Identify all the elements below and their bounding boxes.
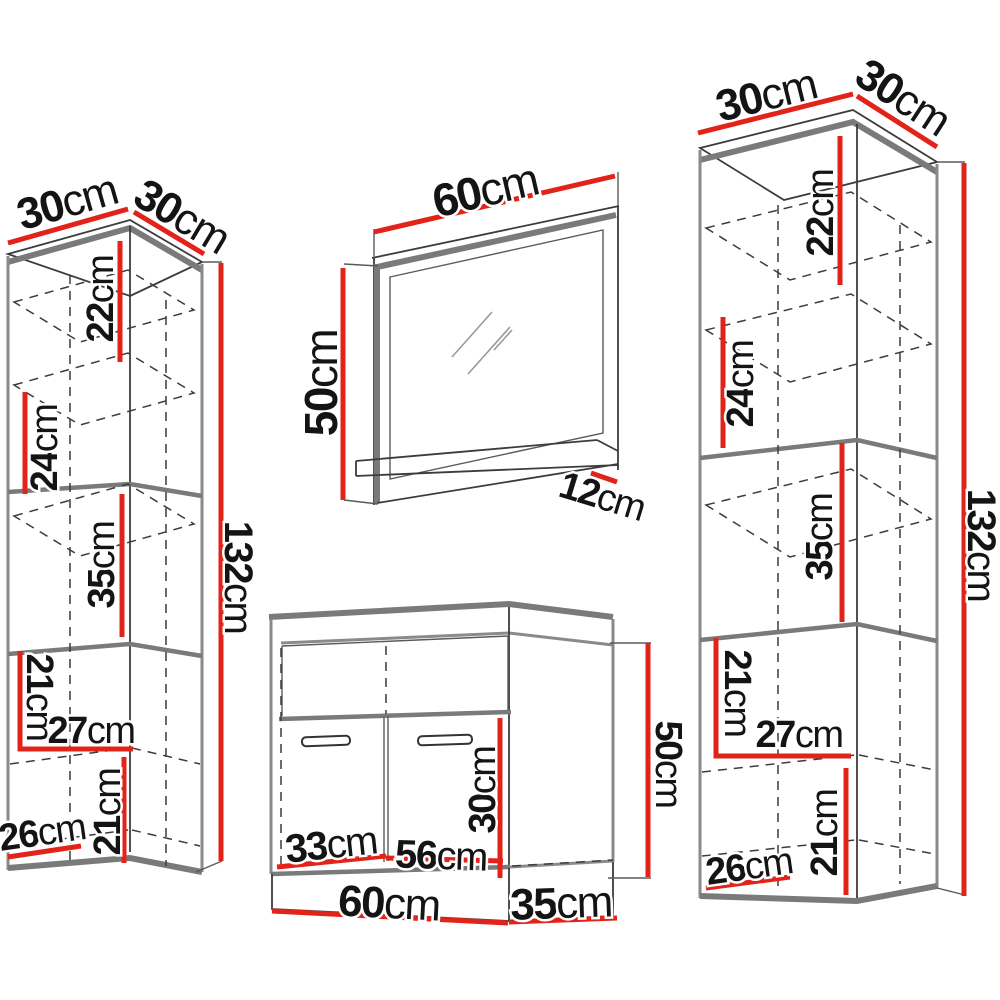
dim-label-left-22: 22cm	[80, 256, 122, 343]
vanity-drawer-panel	[282, 636, 508, 716]
dim-label-right-24: 24cm	[720, 341, 762, 428]
dim-label-right-35: 35cm	[799, 494, 841, 581]
dim-label-vanity-35: 35cm	[509, 877, 612, 930]
dim-label-vanity-30: 30cm	[462, 747, 504, 834]
dim-label-left-21b: 21cm	[87, 769, 129, 856]
vanity-divider	[279, 712, 511, 719]
dim-label-right-21b: 21cm	[804, 790, 846, 877]
vanity-countertop-edge	[269, 604, 613, 617]
dim-label-vanity-56: 56cm	[394, 832, 487, 879]
mirror-outline	[372, 206, 619, 505]
dim-label-left-26: 26cm	[0, 806, 88, 860]
dim-label-right-132: 132cm	[959, 489, 1000, 602]
dim-label-left-24: 24cm	[24, 405, 66, 492]
furniture-dimension-diagram: 30cm 30cm 22cm 24cm 35cm 21cm 27cm 21cm …	[0, 0, 1000, 1000]
mirror-drawing	[343, 172, 619, 505]
dim-label-left-132: 132cm	[216, 521, 260, 634]
dim-label-mirror-12: 12cm	[554, 464, 649, 530]
diagram-canvas: 30cm 30cm 22cm 24cm 35cm 21cm 27cm 21cm …	[0, 0, 1000, 1000]
dim-label-vanity-60: 60cm	[337, 876, 441, 930]
dim-label-mirror-60: 60cm	[427, 153, 542, 228]
mirror-reflection-lines	[452, 312, 512, 374]
dim-label-right-21a: 21cm	[716, 650, 758, 737]
dim-label-right-27: 27cm	[756, 714, 843, 756]
vanity-right-door-handle	[418, 735, 472, 746]
left-cabinet-bottom-edge	[8, 858, 202, 872]
right-cabinet-divider-lower	[700, 624, 937, 641]
dim-label-vanity-50: 50cm	[647, 721, 689, 808]
vanity-left-door-handle	[302, 736, 350, 747]
right-cabinet-divider-upper	[700, 440, 937, 458]
dim-label-mirror-50: 50cm	[295, 330, 347, 437]
dim-label-right-width-top: 30cm	[711, 59, 821, 131]
dim-label-vanity-33: 33cm	[283, 818, 379, 871]
dim-label-left-35: 35cm	[81, 522, 123, 609]
vanity-door-gap	[384, 716, 388, 862]
dim-label-left-27: 27cm	[48, 710, 135, 752]
dim-label-right-26: 26cm	[703, 840, 795, 894]
dim-label-right-22: 22cm	[800, 170, 842, 257]
